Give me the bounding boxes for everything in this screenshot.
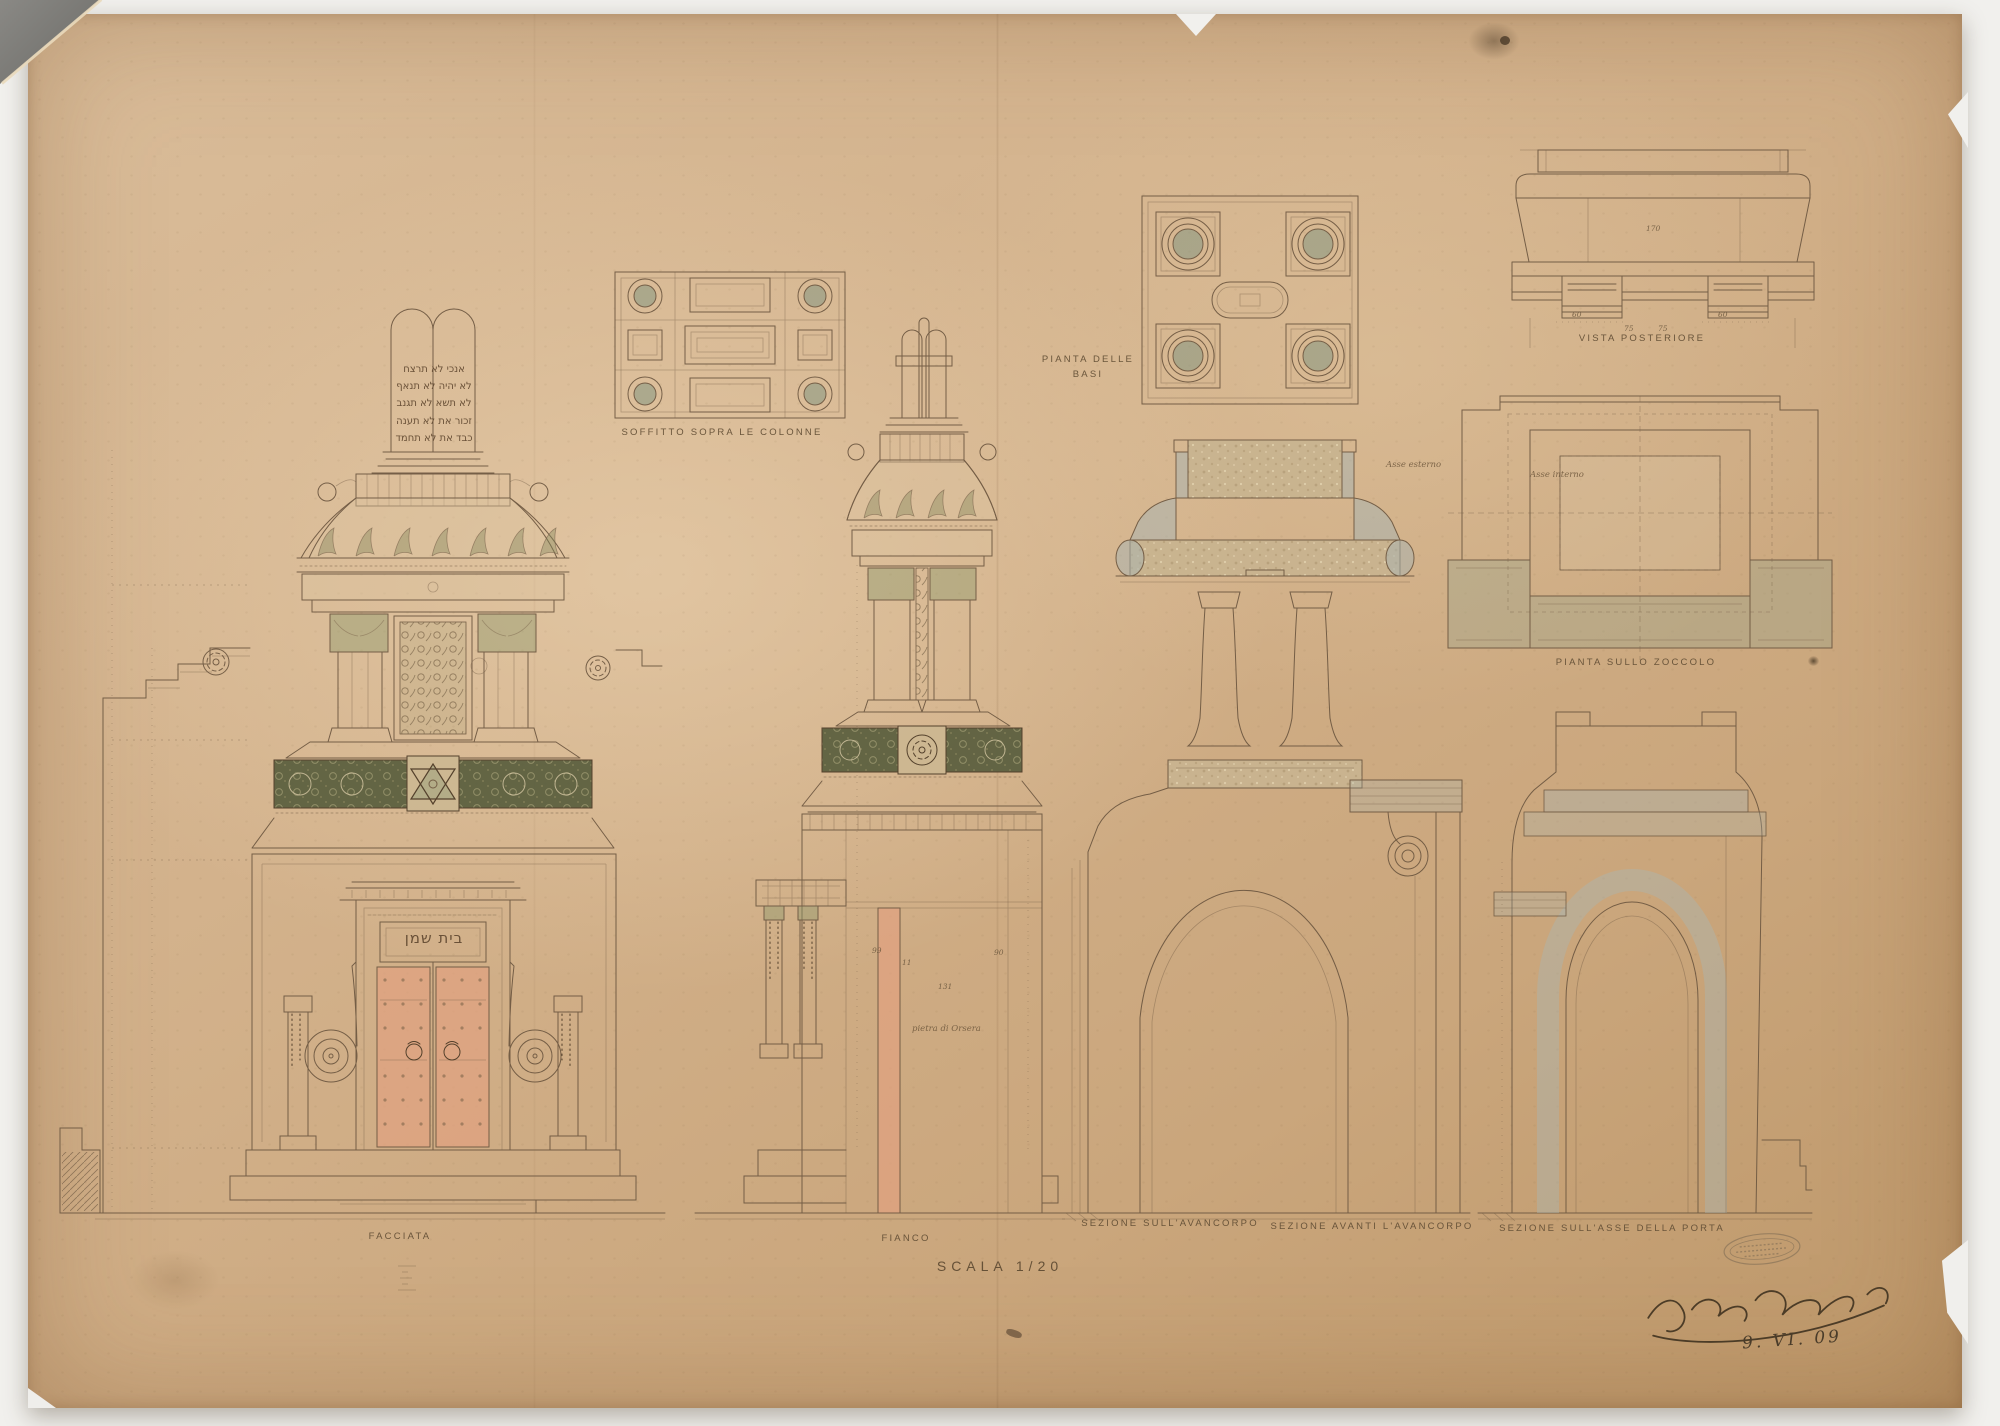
corner-sphere [318, 483, 336, 501]
wall-poche [1548, 880, 1716, 1213]
column-base-circle [1162, 218, 1344, 382]
vista-posteriore-drawing [1512, 150, 1814, 348]
volute-scroll [509, 962, 561, 1082]
volute-scroll [1388, 836, 1428, 876]
hatched-masonry [62, 1152, 98, 1211]
pianta-basi-drawing [1142, 196, 1358, 404]
console-moulding [1354, 498, 1400, 540]
door-leaf [436, 967, 489, 1147]
dimension: 75 [1658, 324, 1668, 333]
scale-note: SCALA 1/20 [880, 1258, 1120, 1274]
dimension: 170 [1646, 224, 1660, 233]
material-note: pietra di Orsera [912, 1024, 981, 1034]
decalogue-line: אנכי לא תרצח [387, 361, 481, 378]
sezione-avancorpo-drawing [1062, 440, 1470, 1221]
decalogue-line: כבד את לא תחמד [387, 430, 481, 447]
bead-pendant-icon [770, 922, 812, 980]
porch-columns [756, 880, 846, 1058]
oval-stamp [1723, 1231, 1801, 1268]
column-capital [330, 614, 388, 652]
label-facciata: FACCIATA [300, 1231, 500, 1242]
side-baluster-column [280, 996, 316, 1150]
label-pianta-zoccolo: PIANTA SULLO ZOCCOLO [1486, 657, 1786, 668]
pianta-zoccolo-drawing [1448, 396, 1832, 660]
dimension: 60 [1572, 310, 1582, 319]
label-fianco: FIANCO [806, 1233, 1006, 1244]
dimension: 99 [872, 946, 882, 955]
decalogue-line: לא יהיה לא תנאף [387, 378, 481, 395]
bead-pendant-icon [292, 1014, 300, 1068]
bead-pendant-icon [562, 1014, 570, 1068]
volute-scroll [305, 962, 357, 1082]
rosette-icon [586, 656, 610, 680]
door-lintel-inscription: בית שמן [382, 929, 486, 947]
dimension: 131 [938, 982, 952, 991]
label-soffitto: SOFFITTO SOPRA LE COLONNE [572, 427, 872, 438]
decalogue-inscription: אנכי לא תרצח לא יהיה לא תנאף לא תשא לא ת… [387, 361, 481, 447]
rosette-icon [203, 649, 229, 675]
label-vista-posteriore: VISTA POSTERIORE [1517, 333, 1767, 344]
console-moulding [1130, 498, 1176, 540]
facciata-drawing [60, 309, 665, 1290]
fianco-drawing [695, 318, 1065, 1219]
sezione-avanti-drawing [1350, 780, 1462, 1213]
coffer-circle [628, 279, 832, 411]
section-columns [1188, 592, 1342, 746]
scanned-drawing-sheet: אנכי לא תרצח לא יהיה לא תנאף לא תשא לא ת… [0, 0, 2000, 1426]
side-baluster-column [550, 996, 586, 1150]
door-leaf [377, 967, 430, 1147]
label-pianta-basi: PIANTA DELLE BASI [1038, 352, 1138, 382]
label-sezione-porta: SEZIONE SULL'ASSE DELLA PORTA [1462, 1223, 1762, 1234]
dimension: 90 [994, 948, 1004, 957]
axis-note-inner: Asse interno [1530, 470, 1584, 480]
corner-sphere [530, 483, 548, 501]
axis-note-outer: Asse esterno [1386, 460, 1441, 470]
dimension: 60 [1718, 310, 1728, 319]
decalogue-line: זכור את לא תענה [387, 413, 481, 430]
tablet-finial [880, 318, 968, 432]
sezione-porta-drawing [1478, 712, 1812, 1221]
stepped-plinths [1512, 276, 1814, 318]
arabesque-panel [400, 622, 466, 734]
decalogue-line: לא תשא לא תגנב [387, 395, 481, 412]
dimension: 75 [1624, 324, 1634, 333]
ink-drawing-layer [0, 0, 2000, 1426]
soffitto-drawing [615, 272, 845, 418]
double-door [377, 962, 489, 1150]
column-capital [478, 614, 536, 652]
dimension: 11 [902, 958, 912, 967]
